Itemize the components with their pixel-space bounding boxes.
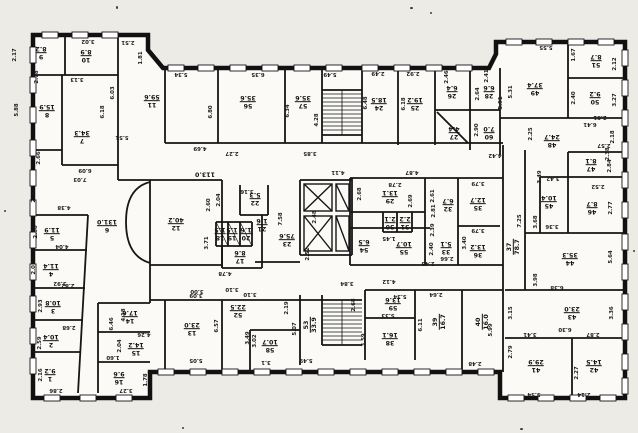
window [382, 369, 398, 375]
window [318, 369, 334, 375]
window [538, 395, 554, 401]
window [230, 65, 246, 71]
window [286, 369, 302, 375]
window [508, 395, 524, 401]
window [506, 39, 522, 45]
window [622, 354, 628, 370]
window [622, 172, 628, 188]
window [30, 77, 36, 93]
window [30, 232, 36, 248]
window [446, 369, 462, 375]
window [622, 80, 628, 96]
window [262, 65, 278, 71]
window [30, 358, 36, 374]
window [426, 65, 442, 71]
window [622, 50, 628, 66]
window [622, 110, 628, 126]
window [568, 39, 584, 45]
window [72, 32, 88, 38]
window [622, 324, 628, 340]
window [158, 369, 174, 375]
window [30, 328, 36, 344]
window [190, 369, 206, 375]
floor-plan-drawing [0, 0, 638, 433]
window [536, 39, 552, 45]
window [622, 234, 628, 250]
window [102, 32, 118, 38]
window [30, 296, 36, 312]
scan-speck [430, 12, 432, 14]
window [30, 200, 36, 216]
window [168, 65, 184, 71]
window [622, 202, 628, 218]
window [622, 264, 628, 280]
scan-speck [633, 250, 635, 252]
window [30, 264, 36, 280]
window [622, 142, 628, 158]
window [570, 395, 586, 401]
window [198, 65, 214, 71]
window [294, 65, 310, 71]
window [362, 65, 378, 71]
window [600, 395, 616, 401]
scan-speck [116, 6, 118, 9]
window [598, 39, 614, 45]
window [622, 294, 628, 310]
window [30, 47, 36, 63]
window [478, 369, 494, 375]
window [326, 65, 342, 71]
scan-speck [4, 210, 6, 212]
window [116, 395, 132, 401]
window [254, 369, 270, 375]
scan-speck [182, 427, 184, 429]
window [414, 369, 430, 375]
window [42, 32, 58, 38]
window [80, 395, 96, 401]
window [394, 65, 410, 71]
window [30, 170, 36, 186]
window [456, 65, 472, 71]
floor-plan-page: 19.2210.4310.8411.4511.96131.0734.3815.9… [0, 0, 638, 433]
scan-speck [410, 7, 413, 9]
window [30, 107, 36, 123]
window [222, 369, 238, 375]
window [30, 140, 36, 156]
window [622, 378, 628, 394]
window [44, 395, 60, 401]
window [350, 369, 366, 375]
scan-speck [520, 428, 523, 430]
